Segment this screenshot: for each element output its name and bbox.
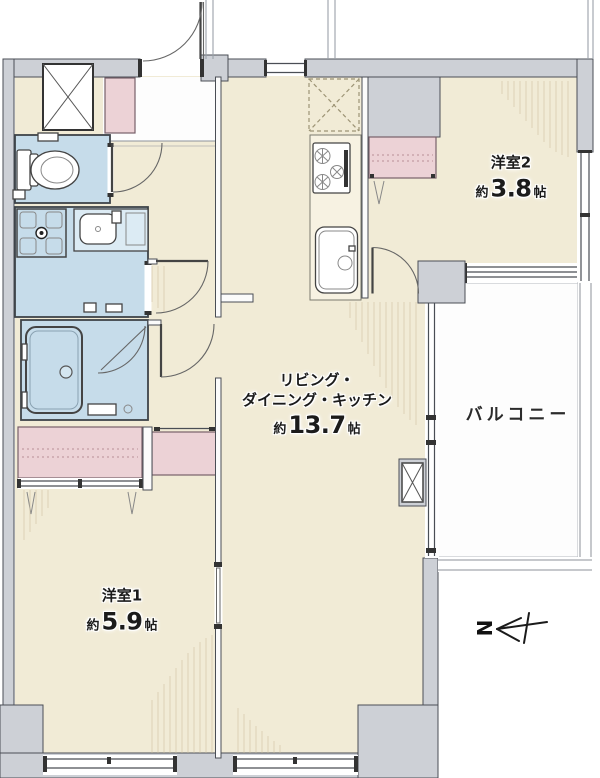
hall-closet [152,427,217,475]
entrance-door [138,2,204,77]
room-label-balcony: バルコニー [466,404,571,426]
compass-north-label: N [472,620,496,637]
vanity-fixture [74,209,148,251]
exterior-party-walls [206,0,593,59]
bedroom1-area: 約5.9帖 [86,606,157,637]
compass-arrow [497,613,547,643]
ldk-area: 約13.7帖 [242,410,392,441]
bedroom1-window [43,755,177,775]
pipe-shaft [399,459,426,506]
bedroom2-name: 洋室2 [475,154,546,174]
ldk-window [233,755,358,775]
ldk-name-line1: リビング・ [242,371,392,391]
room-label-bedroom1: 洋室1 約5.9帖 [86,587,157,638]
gas-stove-fixture [313,143,350,193]
bedroom2-area: 約3.8帖 [475,173,546,204]
entry-window [264,60,307,76]
bedroom2-side-window [578,150,592,283]
ldk-balcony-window [425,283,439,558]
bedroom1-sliding-door [214,562,223,629]
room-label-ldk: リビング・ ダイニング・キッチン 約13.7帖 [242,371,392,441]
ldk-name-line2: ダイニング・キッチン [242,390,392,410]
shoe-cabinet [105,78,135,133]
balcony-pillar [418,261,465,303]
meter-box [43,64,93,130]
kitchen-sink-fixture [316,227,358,293]
bedroom2-balcony-window [463,263,577,283]
floor-plan: 洋室2 約3.8帖 リビング・ ダイニング・キッチン 約13.7帖 洋室1 約5… [0,0,600,778]
closet-divider-wall [143,427,152,490]
bedroom1-name: 洋室1 [86,587,157,607]
room-label-bedroom2: 洋室2 約3.8帖 [475,154,546,205]
